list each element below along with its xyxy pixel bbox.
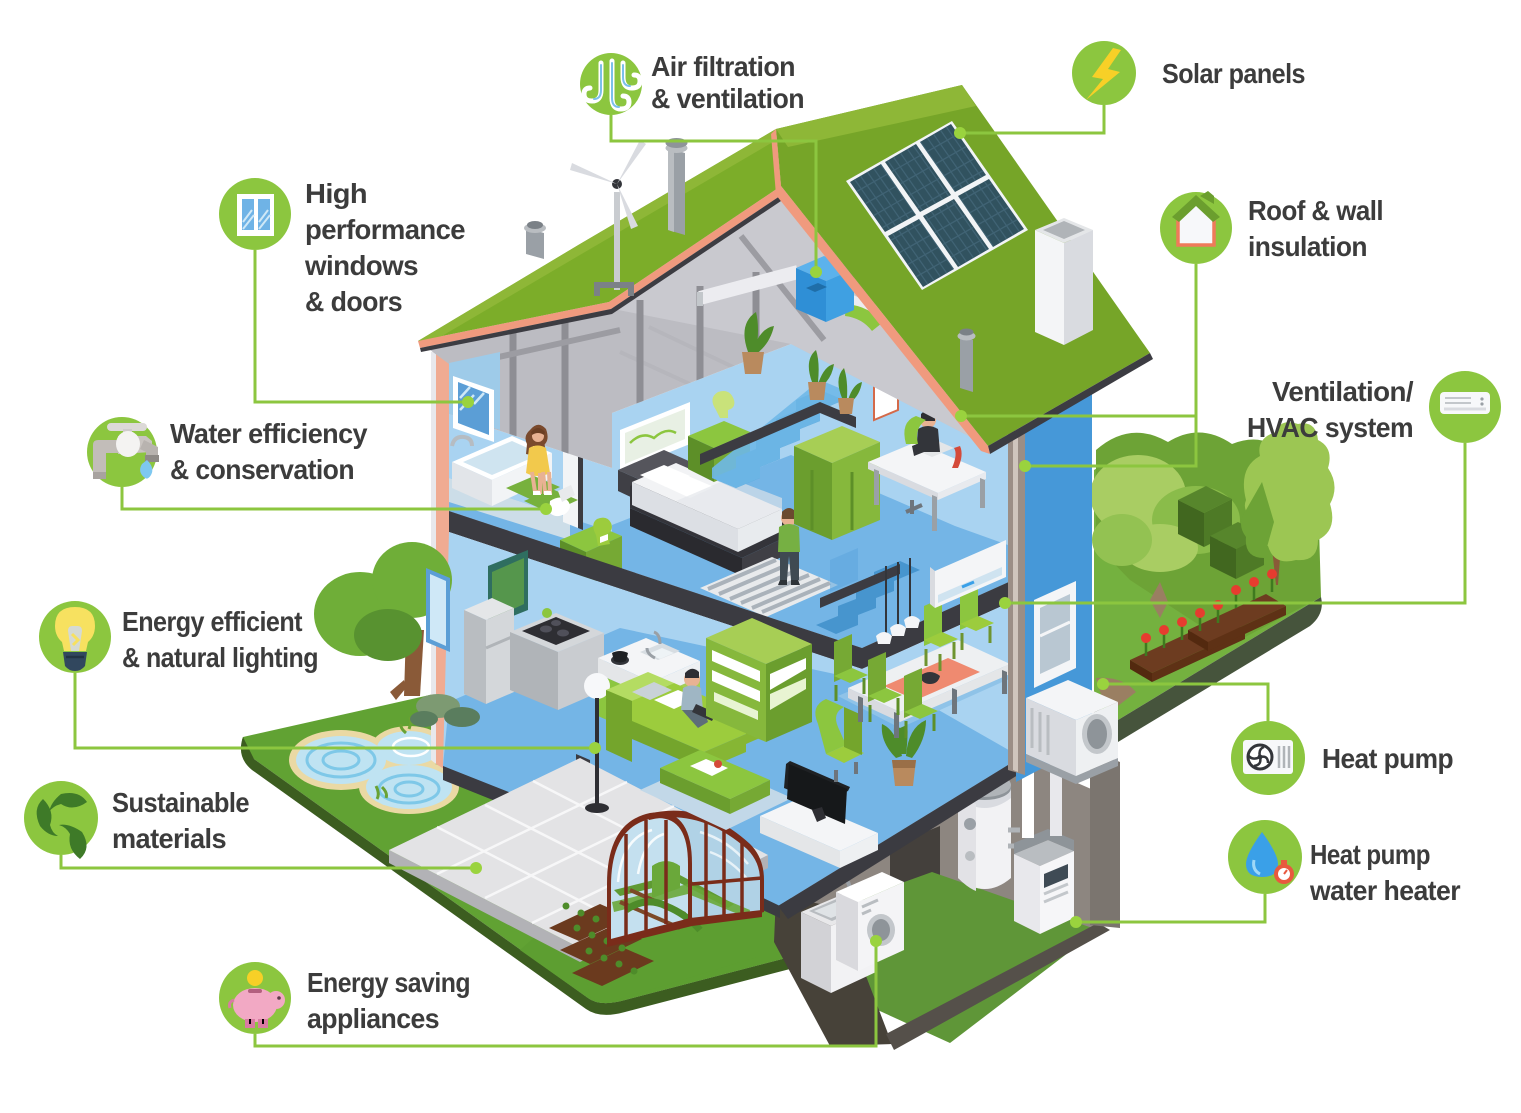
svg-text:Air filtration: Air filtration xyxy=(651,51,795,82)
svg-text:insulation: insulation xyxy=(1248,231,1367,262)
svg-text:& ventilation: & ventilation xyxy=(651,83,804,114)
svg-text:windows: windows xyxy=(304,250,418,281)
svg-text:appliances: appliances xyxy=(307,1003,439,1034)
svg-text:Solar panels: Solar panels xyxy=(1162,58,1305,89)
svg-text:& conservation: & conservation xyxy=(170,454,354,485)
svg-text:Water efficiency: Water efficiency xyxy=(170,418,368,449)
svg-text:water heater: water heater xyxy=(1309,875,1461,906)
svg-text:HVAC system: HVAC system xyxy=(1247,412,1413,443)
svg-text:materials: materials xyxy=(112,823,226,854)
svg-text:& natural lighting: & natural lighting xyxy=(122,642,318,673)
svg-text:Heat pump: Heat pump xyxy=(1322,743,1453,774)
svg-text:Ventilation/: Ventilation/ xyxy=(1272,376,1414,407)
svg-text:performance: performance xyxy=(305,214,465,245)
svg-text:Energy saving: Energy saving xyxy=(307,967,470,998)
svg-text:Heat pump: Heat pump xyxy=(1310,839,1430,870)
svg-text:High: High xyxy=(305,178,367,209)
svg-text:& doors: & doors xyxy=(305,286,402,317)
svg-text:Roof & wall: Roof & wall xyxy=(1248,195,1383,226)
svg-text:Energy efficient: Energy efficient xyxy=(122,606,302,637)
svg-text:Sustainable: Sustainable xyxy=(112,787,249,818)
